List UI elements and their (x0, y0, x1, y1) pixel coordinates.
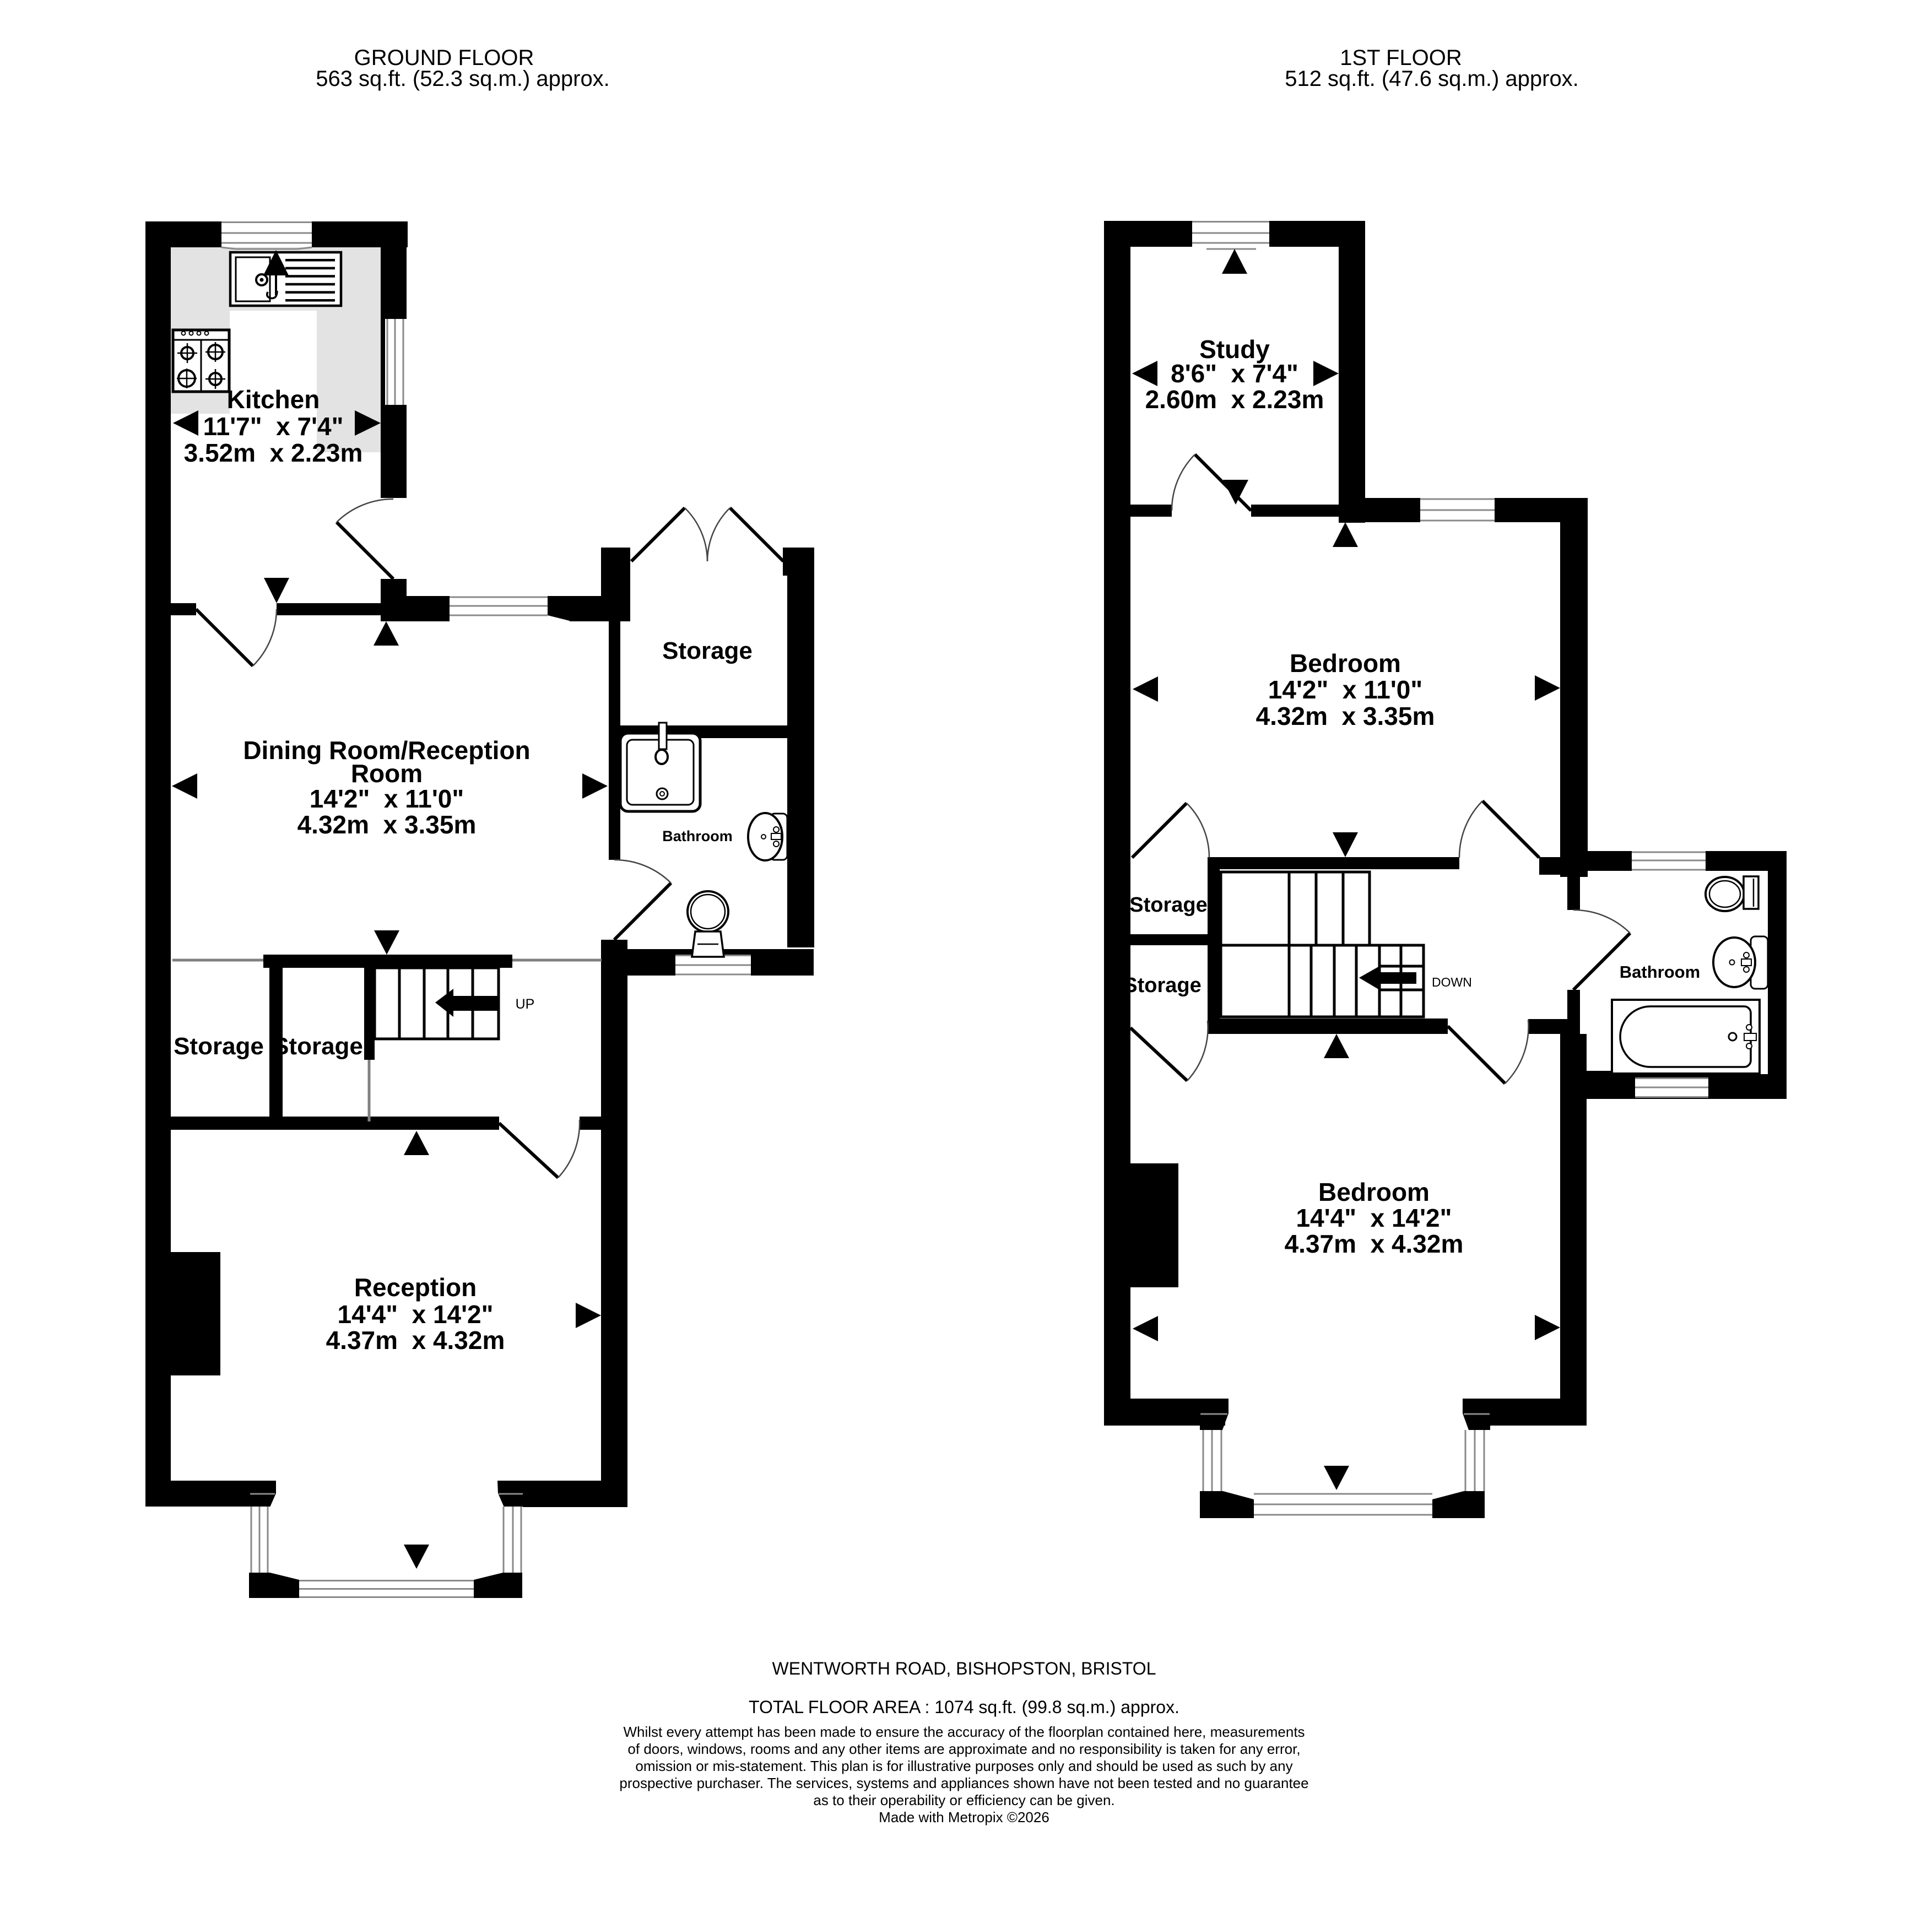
svg-text:563 sq.ft. (52.3 sq.m.) approx: 563 sq.ft. (52.3 sq.m.) approx. (316, 67, 610, 91)
svg-text:14'4" x 14'2": 14'4" x 14'2" (338, 1300, 494, 1329)
svg-text:prospective purchaser. The ser: prospective purchaser. The services, sys… (619, 1775, 1308, 1791)
svg-text:Kitchen: Kitchen (227, 385, 320, 414)
svg-text:as to their operability or eff: as to their operability or efficiency ca… (813, 1792, 1114, 1808)
svg-text:4.32m x 3.35m: 4.32m x 3.35m (297, 810, 477, 839)
svg-text:of doors, windows, rooms and a: of doors, windows, rooms and any other i… (627, 1741, 1300, 1757)
svg-text:14'4" x 14'2": 14'4" x 14'2" (1296, 1204, 1452, 1232)
svg-text:Room: Room (351, 759, 423, 788)
svg-text:Bathroom: Bathroom (662, 828, 733, 844)
svg-text:14'2" x 11'0": 14'2" x 11'0" (1268, 675, 1422, 704)
svg-text:DOWN: DOWN (1432, 975, 1472, 989)
svg-text:4.37m x 4.32m: 4.37m x 4.32m (1285, 1229, 1464, 1258)
svg-text:UP: UP (516, 996, 535, 1012)
svg-text:Whilst every attempt has been: Whilst every attempt has been made to en… (623, 1724, 1305, 1740)
svg-text:Storage: Storage (662, 637, 753, 664)
svg-text:Storage: Storage (273, 1033, 363, 1060)
svg-text:Bedroom: Bedroom (1290, 649, 1401, 678)
svg-text:Made with Metropix ©2026: Made with Metropix ©2026 (879, 1809, 1049, 1825)
svg-text:omission or mis-statement. Thi: omission or mis-statement. This plan is … (635, 1758, 1292, 1774)
svg-text:3.52m x 2.23m: 3.52m x 2.23m (184, 438, 363, 467)
svg-text:11'7" x 7'4": 11'7" x 7'4" (203, 412, 344, 441)
svg-text:8'6" x 7'4": 8'6" x 7'4" (1171, 359, 1298, 388)
svg-text:WENTWORTH ROAD, BISHOPSTON, BR: WENTWORTH ROAD, BISHOPSTON, BRISTOL (772, 1659, 1156, 1678)
svg-text:14'2" x 11'0": 14'2" x 11'0" (310, 784, 464, 813)
svg-text:2.60m x 2.23m: 2.60m x 2.23m (1145, 385, 1324, 414)
svg-text:Storage: Storage (174, 1033, 264, 1060)
svg-text:Storage: Storage (1129, 893, 1207, 917)
svg-text:Bedroom: Bedroom (1318, 1178, 1430, 1206)
svg-text:512 sq.ft. (47.6 sq.m.) approx: 512 sq.ft. (47.6 sq.m.) approx. (1285, 67, 1579, 91)
svg-text:Reception: Reception (354, 1273, 477, 1302)
svg-text:4.32m x 3.35m: 4.32m x 3.35m (1256, 702, 1435, 730)
svg-text:Bathroom: Bathroom (1620, 962, 1700, 982)
svg-text:Storage: Storage (1123, 974, 1201, 997)
svg-text:TOTAL FLOOR AREA : 1074 sq.ft.: TOTAL FLOOR AREA : 1074 sq.ft. (99.8 sq.… (749, 1697, 1179, 1717)
svg-text:4.37m x 4.32m: 4.37m x 4.32m (326, 1326, 505, 1355)
